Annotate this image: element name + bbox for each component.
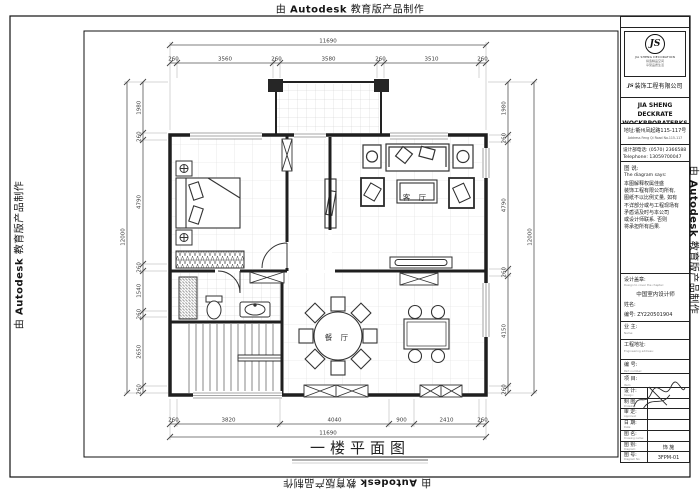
company-logo-icon: JS bbox=[645, 34, 665, 54]
drawing-type-row: 图 别:Diagram: 饰 施 bbox=[621, 441, 689, 452]
site-row: 工程地址: Engineering address: bbox=[621, 339, 689, 359]
bed bbox=[176, 178, 240, 228]
signature bbox=[629, 379, 690, 415]
address-cn: 地址:衢州凤起路115-117号 bbox=[621, 127, 689, 134]
svg-text:12000: 12000 bbox=[121, 228, 127, 246]
phone-cn: 设计部电话: (0570) 2366588 bbox=[623, 147, 687, 153]
svg-text:900: 900 bbox=[396, 418, 407, 424]
phone-en: Telephone: 13059700047 bbox=[623, 155, 687, 160]
svg-text:11690: 11690 bbox=[319, 39, 337, 45]
svg-text:260: 260 bbox=[271, 57, 282, 63]
dimension-text-bottom: 260 3820 4040 900 2410 260 11690 bbox=[168, 418, 488, 437]
stairs bbox=[189, 324, 282, 393]
svg-text:2650: 2650 bbox=[137, 344, 143, 358]
svg-text:一楼平面图: 一楼平面图 bbox=[310, 439, 410, 457]
dimension-text-top: 11690 260 3560 260 3580 260 3510 260 bbox=[168, 39, 488, 63]
svg-text:260: 260 bbox=[375, 57, 386, 63]
dimension-text-left: 1980 260 4790 260 1540 260 2650 260 1200… bbox=[121, 100, 143, 394]
company-name-en: JIA SHENG DECKRATE WOCKRPORATERKS bbox=[621, 97, 689, 123]
seal-number: 编号: ZY220501904 bbox=[624, 311, 687, 318]
dining-room-label: 餐 厅 bbox=[325, 333, 351, 342]
svg-text:260: 260 bbox=[168, 418, 179, 424]
logo-box: JS JIA SHENG DECORATION 缔造精品空间 享受品质生活 bbox=[624, 31, 686, 77]
svg-text:12000: 12000 bbox=[528, 228, 534, 246]
seal-section: 设计盖章: Design to cover the chapter: 中国室内设… bbox=[621, 273, 689, 321]
svg-text:260: 260 bbox=[137, 262, 143, 273]
svg-text:260: 260 bbox=[477, 57, 488, 63]
disclaimer-line: 矛盾请及时与本公司 bbox=[624, 210, 687, 217]
svg-text:3580: 3580 bbox=[322, 57, 336, 63]
floor-plan-canvas: 11690 260 3560 260 3580 260 3510 260 260… bbox=[0, 0, 700, 491]
diagram-says-section: 图 说: The diagram says: 本图解释权属佳盛 装饰工程有限公司… bbox=[621, 161, 689, 273]
drawing-sheet: 由 Autodesk 教育版产品制作 由 Autodesk 教育版产品制作 由 … bbox=[0, 0, 700, 491]
svg-text:260: 260 bbox=[502, 132, 508, 143]
shower bbox=[179, 277, 197, 319]
seal-label: 设计盖章: bbox=[624, 276, 687, 283]
date-row: 日 期:Date: bbox=[621, 419, 689, 430]
drawing-name-row: 图 名:Drawing name: bbox=[621, 430, 689, 441]
phone-section: 设计部电话: (0570) 2366588 Telephone: 1305970… bbox=[621, 144, 689, 161]
logo-section: JS JIA SHENG DECORATION 缔造精品空间 享受品质生活 JS… bbox=[621, 27, 689, 97]
svg-text:260: 260 bbox=[137, 131, 143, 142]
svg-text:260: 260 bbox=[502, 384, 508, 395]
svg-text:1980: 1980 bbox=[137, 100, 143, 114]
drawing-number-row: 图 号:Diagram No: 3FPM-01 bbox=[621, 451, 689, 462]
svg-text:4040: 4040 bbox=[328, 418, 342, 424]
sink bbox=[240, 302, 270, 317]
svg-text:3820: 3820 bbox=[222, 418, 236, 424]
living-room-label: 客 厅 bbox=[403, 192, 429, 202]
mini-logo-icon: JS bbox=[628, 83, 634, 89]
logo-slogan-2: 享受品质生活 bbox=[646, 63, 664, 67]
svg-text:260: 260 bbox=[477, 418, 488, 424]
svg-text:260: 260 bbox=[168, 57, 179, 63]
svg-text:4790: 4790 bbox=[137, 195, 143, 209]
svg-text:260: 260 bbox=[137, 384, 143, 395]
svg-text:2410: 2410 bbox=[440, 418, 454, 424]
sofa bbox=[363, 144, 473, 171]
wardrobe bbox=[176, 251, 244, 268]
disclaimer-line: 将承担所有后果. bbox=[624, 224, 687, 231]
seal-label-en: Design to cover the chapter: bbox=[624, 283, 687, 287]
svg-text:1980: 1980 bbox=[502, 101, 508, 115]
svg-text:3560: 3560 bbox=[218, 57, 232, 63]
svg-text:4150: 4150 bbox=[502, 324, 508, 338]
svg-text:4790: 4790 bbox=[502, 198, 508, 212]
dimension-text-right: 1980 260 4790 260 4150 260 12000 bbox=[502, 101, 534, 395]
plan-title: 一楼平面图 bbox=[292, 439, 428, 463]
toilet bbox=[206, 296, 222, 319]
title-block-spacer bbox=[621, 17, 689, 27]
address-section: 地址:衢州凤起路115-117号 Address Feng Qi Road No… bbox=[621, 123, 689, 144]
svg-text:1540: 1540 bbox=[137, 283, 143, 297]
company-name-cn: JS 装饰工程有限公司 bbox=[621, 77, 689, 94]
owner-row: 业 主: Name: bbox=[621, 321, 689, 339]
seal-association: 中国室内设计师 bbox=[624, 290, 687, 298]
diagram-says-en: The diagram says: bbox=[624, 173, 687, 178]
serial-row: 编 号: Part number: bbox=[621, 359, 689, 373]
address-en: Address Feng Qi Road No.115-117 bbox=[621, 136, 689, 140]
disclaimer-line: 不详部分或与工程现场有 bbox=[624, 203, 687, 210]
diagram-says-label: 图 说: bbox=[624, 164, 687, 172]
disclaimer-line: 图纸不以比例丈量, 如有 bbox=[624, 195, 687, 202]
seal-name: 姓名: bbox=[624, 301, 687, 308]
svg-text:11690: 11690 bbox=[319, 431, 337, 437]
svg-text:3510: 3510 bbox=[425, 57, 439, 63]
sideboard bbox=[390, 257, 452, 268]
svg-text:260: 260 bbox=[502, 267, 508, 278]
svg-text:260: 260 bbox=[137, 308, 143, 319]
